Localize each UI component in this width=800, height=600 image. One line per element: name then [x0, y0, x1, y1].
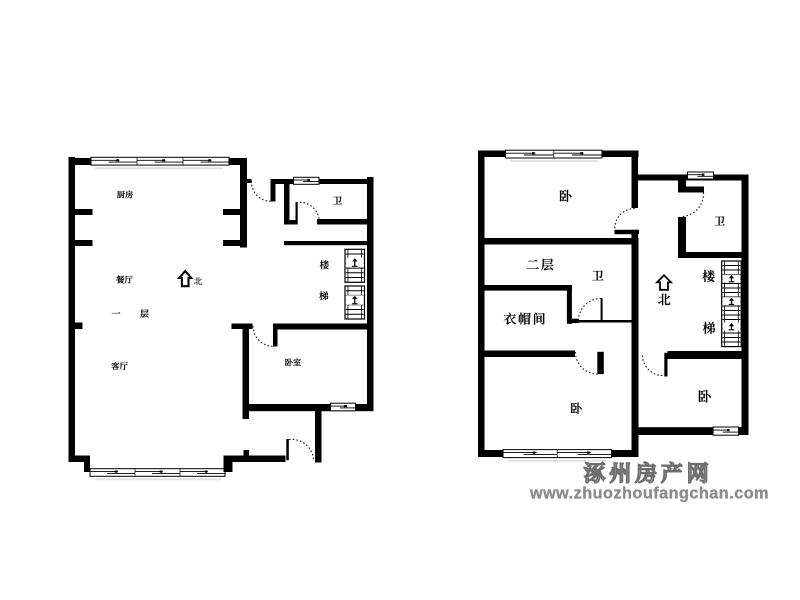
svg-text:www.zhuozhoufangchan.com: www.zhuozhoufangchan.com: [529, 485, 769, 503]
